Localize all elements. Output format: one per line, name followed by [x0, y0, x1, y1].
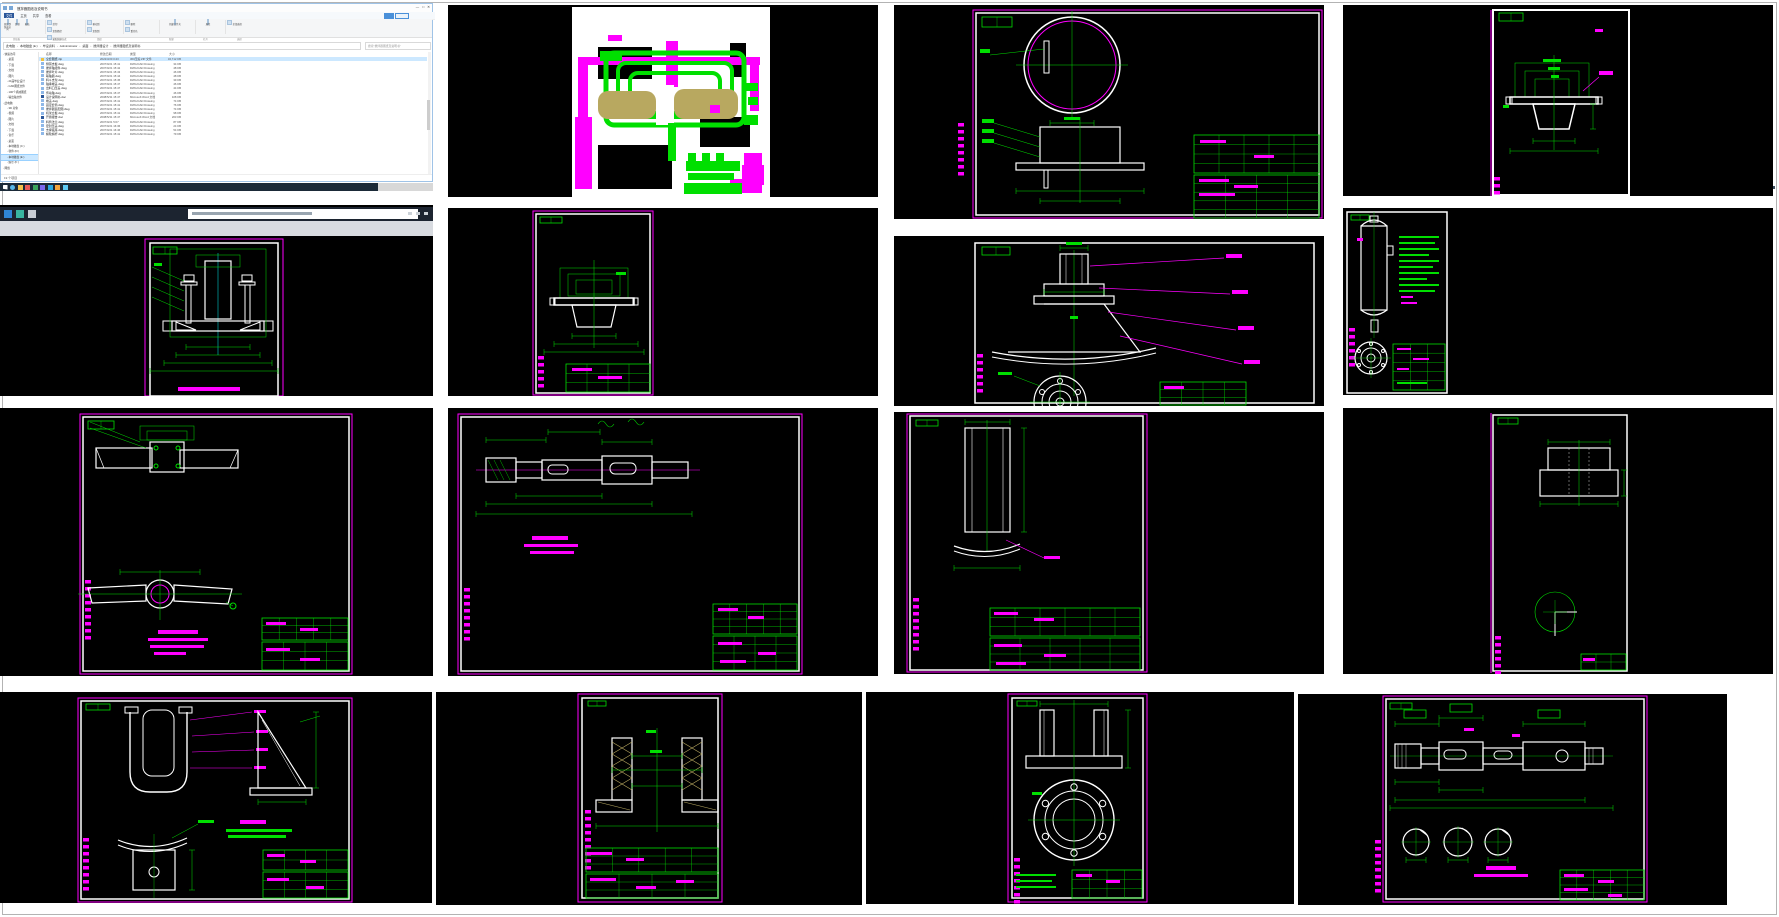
cut-button[interactable]: 剪切	[47, 20, 85, 27]
status-bar: 19 个项目	[1, 174, 432, 181]
file-type-icon	[41, 58, 44, 61]
file-explorer-window: 搅拌器图纸及说明书 — □ ✕ 文件 主页 共享 查看 固定到快速访问 复制 粘…	[0, 3, 433, 182]
lid-with-slot-flange-drawing[interactable]	[894, 5, 1324, 219]
taskbar-app-icon[interactable]	[63, 185, 68, 190]
file-type: DWG/CAD Drawing	[130, 132, 155, 136]
tab-view[interactable]: 查看	[45, 13, 51, 18]
chevron-icon[interactable]: ›	[7, 64, 8, 67]
taskbar-app-icon[interactable]	[25, 185, 30, 190]
navigation-pane: › 快速访问› 桌面› 下载› 文档› 图片› 21届毕业设计› CAD图纸文件…	[1, 52, 39, 175]
app-icon	[3, 6, 7, 10]
lined-bushing-drawing[interactable]	[436, 692, 862, 905]
hopper-cone-drawing[interactable]	[894, 236, 1324, 406]
file-row[interactable]: 蜗轮蜗杆.dwg2007/9/21 15:41DWG/CAD Drawing79…	[39, 132, 427, 136]
address-bar[interactable]: 此电脑›本地磁盘 (E:)›毕设资料›Administrator›桌面›搅拌器设…	[3, 42, 361, 50]
breadcrumb-segment[interactable]: 本地磁盘 (E:)	[20, 44, 38, 48]
clamp-assembly-drawing[interactable]	[0, 205, 433, 396]
breadcrumb-separator: ›	[79, 44, 80, 48]
file-type-icon	[41, 62, 44, 65]
chevron-icon[interactable]: ›	[7, 145, 8, 148]
coupling-drawing[interactable]	[1343, 408, 1773, 674]
copy-path-icon	[47, 27, 52, 32]
breadcrumb-segment[interactable]: 毕设资料	[43, 44, 55, 48]
chevron-icon[interactable]: ›	[3, 167, 4, 170]
column-header-size[interactable]: 大小	[169, 52, 175, 56]
group-label-clipboard: 剪贴板	[13, 37, 20, 41]
file-type-icon	[41, 78, 44, 81]
start-button[interactable]	[3, 185, 8, 190]
search-input[interactable]: 搜索"搅拌器图纸及说明书"	[365, 42, 431, 50]
file-type-icon	[41, 82, 44, 85]
shortcut-icon	[47, 35, 52, 40]
column-header-type[interactable]: 类型	[130, 52, 136, 56]
file-size: 79 KB	[156, 132, 181, 136]
maximize-button[interactable]: □	[422, 5, 424, 9]
cad-preview-montage: 搅拌器图纸及说明书 — □ ✕ 文件 主页 共享 查看 固定到快速访问 复制 粘…	[0, 0, 1779, 917]
sidebar-item[interactable]: › 网络	[1, 166, 38, 171]
chevron-icon[interactable]: ›	[7, 161, 8, 164]
chevron-icon[interactable]: ›	[7, 75, 8, 78]
chevron-icon[interactable]: ›	[7, 150, 8, 153]
chevron-icon[interactable]: ›	[3, 53, 4, 56]
file-type-icon	[41, 66, 44, 69]
group-label-organize: 组织	[97, 37, 102, 41]
chevron-icon[interactable]: ›	[7, 85, 8, 88]
file-type-icon	[41, 70, 44, 73]
quick-access-icon[interactable]	[9, 6, 13, 10]
taskbar-app-icon[interactable]	[55, 185, 60, 190]
file-name: 蜗轮蜗杆.dwg	[46, 132, 64, 136]
copy-path-button[interactable]: 复制路径	[47, 27, 85, 34]
file-type-icon	[41, 95, 44, 98]
close-button[interactable]: ✕	[427, 5, 430, 9]
select-all-button[interactable]: 全部选择	[227, 20, 261, 27]
rename-icon	[125, 27, 130, 32]
chevron-icon[interactable]: ›	[7, 96, 8, 99]
group-label-select: 选择	[237, 37, 242, 41]
copy-to-icon	[87, 27, 92, 32]
chevron-icon[interactable]: ›	[7, 140, 8, 143]
file-type-icon	[41, 124, 44, 127]
move-to-button[interactable]: 移动到	[87, 20, 123, 27]
window-title: 搅拌器图纸及说明书	[17, 6, 48, 11]
rename-button[interactable]: 重命名	[125, 27, 159, 34]
chevron-icon[interactable]: ›	[7, 129, 8, 132]
file-type-icon	[41, 87, 44, 90]
breadcrumb-separator: ›	[90, 44, 91, 48]
chevron-icon[interactable]: ›	[7, 91, 8, 94]
select-all-icon	[227, 20, 232, 25]
properties-button[interactable]: 属性	[198, 20, 218, 27]
bolted-flange-drawing[interactable]	[866, 692, 1294, 904]
column-header-name[interactable]: 名称	[46, 52, 52, 56]
file-type-icon	[41, 116, 44, 119]
file-type-icon	[41, 120, 44, 123]
scrollbar[interactable]	[428, 52, 431, 175]
chevron-icon[interactable]: ›	[7, 80, 8, 83]
group-label-open: 打开	[203, 37, 208, 41]
breadcrumb-segment[interactable]: Administrator	[60, 44, 78, 48]
breadcrumb-separator: ›	[17, 44, 18, 48]
file-list: 全套图纸.zip2022/3/20 0:43360压缩 ZIP 文件32,712…	[39, 57, 427, 136]
chevron-icon[interactable]: ›	[7, 118, 8, 121]
file-type-icon	[41, 103, 44, 106]
taskbar	[0, 183, 378, 191]
pin-quick-access-button[interactable]: 固定到快速访问	[4, 20, 11, 32]
chevron-icon[interactable]: ›	[7, 107, 8, 110]
breadcrumb-separator: ›	[110, 44, 111, 48]
tab-share[interactable]: 共享	[33, 13, 39, 18]
flange-cover-drawing[interactable]	[1343, 5, 1773, 196]
file-type-icon	[41, 132, 44, 135]
taskbar-app-icon[interactable]	[10, 185, 15, 190]
stepped-shaft-drawing[interactable]	[448, 408, 878, 676]
taskbar-app-icon[interactable]	[48, 185, 53, 190]
scrollbar-thumb[interactable]	[427, 100, 430, 130]
breadcrumb-segment[interactable]: 搅拌器图纸及说明书	[113, 44, 140, 48]
agitator-propeller-drawing[interactable]	[0, 408, 433, 676]
chevron-icon[interactable]: ›	[7, 156, 8, 159]
item-count: 19 个项目	[4, 176, 17, 180]
breadcrumb-separator: ›	[57, 44, 58, 48]
copy-to-button[interactable]: 复制到	[87, 27, 123, 34]
file-type-icon	[41, 99, 44, 102]
ribbon: 固定到快速访问 复制 粘贴 剪切 复制路径 粘贴快捷方式 移动到 复制到 删除 …	[1, 19, 432, 38]
chevron-icon[interactable]: ›	[3, 102, 4, 105]
pressure-vessel-drawing[interactable]	[1343, 208, 1773, 395]
breadcrumb-segment[interactable]: 此电脑	[6, 44, 15, 48]
chevron-icon[interactable]: ›	[7, 69, 8, 72]
file-type-icon	[41, 107, 44, 110]
move-to-icon	[87, 20, 92, 25]
chevron-icon[interactable]: ›	[7, 58, 8, 61]
column-header-date[interactable]: 修改日期	[100, 52, 112, 56]
taskbar-app-icon[interactable]	[18, 185, 23, 190]
breadcrumb-separator: ›	[40, 44, 41, 48]
file-type-icon	[41, 112, 44, 115]
taskbar-filler	[378, 183, 433, 191]
flange-bush-drawing[interactable]	[448, 208, 878, 396]
file-type-icon	[41, 128, 44, 131]
chevron-icon[interactable]: ›	[7, 123, 8, 126]
copy-button[interactable]: 复制	[14, 20, 21, 27]
cut-icon	[47, 20, 52, 25]
file-date: 2007/9/21 15:41	[100, 132, 120, 136]
delete-icon	[125, 20, 130, 25]
paste-button[interactable]: 粘贴	[24, 20, 31, 27]
taskbar-app-icon[interactable]	[40, 185, 45, 190]
chevron-icon[interactable]: ›	[7, 134, 8, 137]
group-label-new: 新建	[169, 37, 174, 41]
file-type-icon	[41, 91, 44, 94]
guide-plate-drawing[interactable]	[894, 412, 1324, 674]
chevron-icon[interactable]: ›	[7, 112, 8, 115]
breadcrumb-segment[interactable]: 搅拌器设计	[93, 44, 108, 48]
dwg-thumbnail-preview[interactable]	[448, 5, 878, 197]
delete-button[interactable]: 删除	[125, 20, 159, 27]
new-folder-button[interactable]: 新建文件夹	[162, 20, 188, 27]
tab-file[interactable]: 文件	[4, 13, 14, 18]
tab-home[interactable]: 主页	[20, 13, 26, 18]
minimize-button[interactable]: —	[416, 5, 419, 9]
bracket-gusset-drawing[interactable]	[0, 692, 432, 903]
taskbar-app-icon[interactable]	[33, 185, 38, 190]
breadcrumb-segment[interactable]: 桌面	[82, 44, 88, 48]
output-shaft-drawing[interactable]	[1298, 694, 1727, 905]
file-type-icon	[41, 74, 44, 77]
